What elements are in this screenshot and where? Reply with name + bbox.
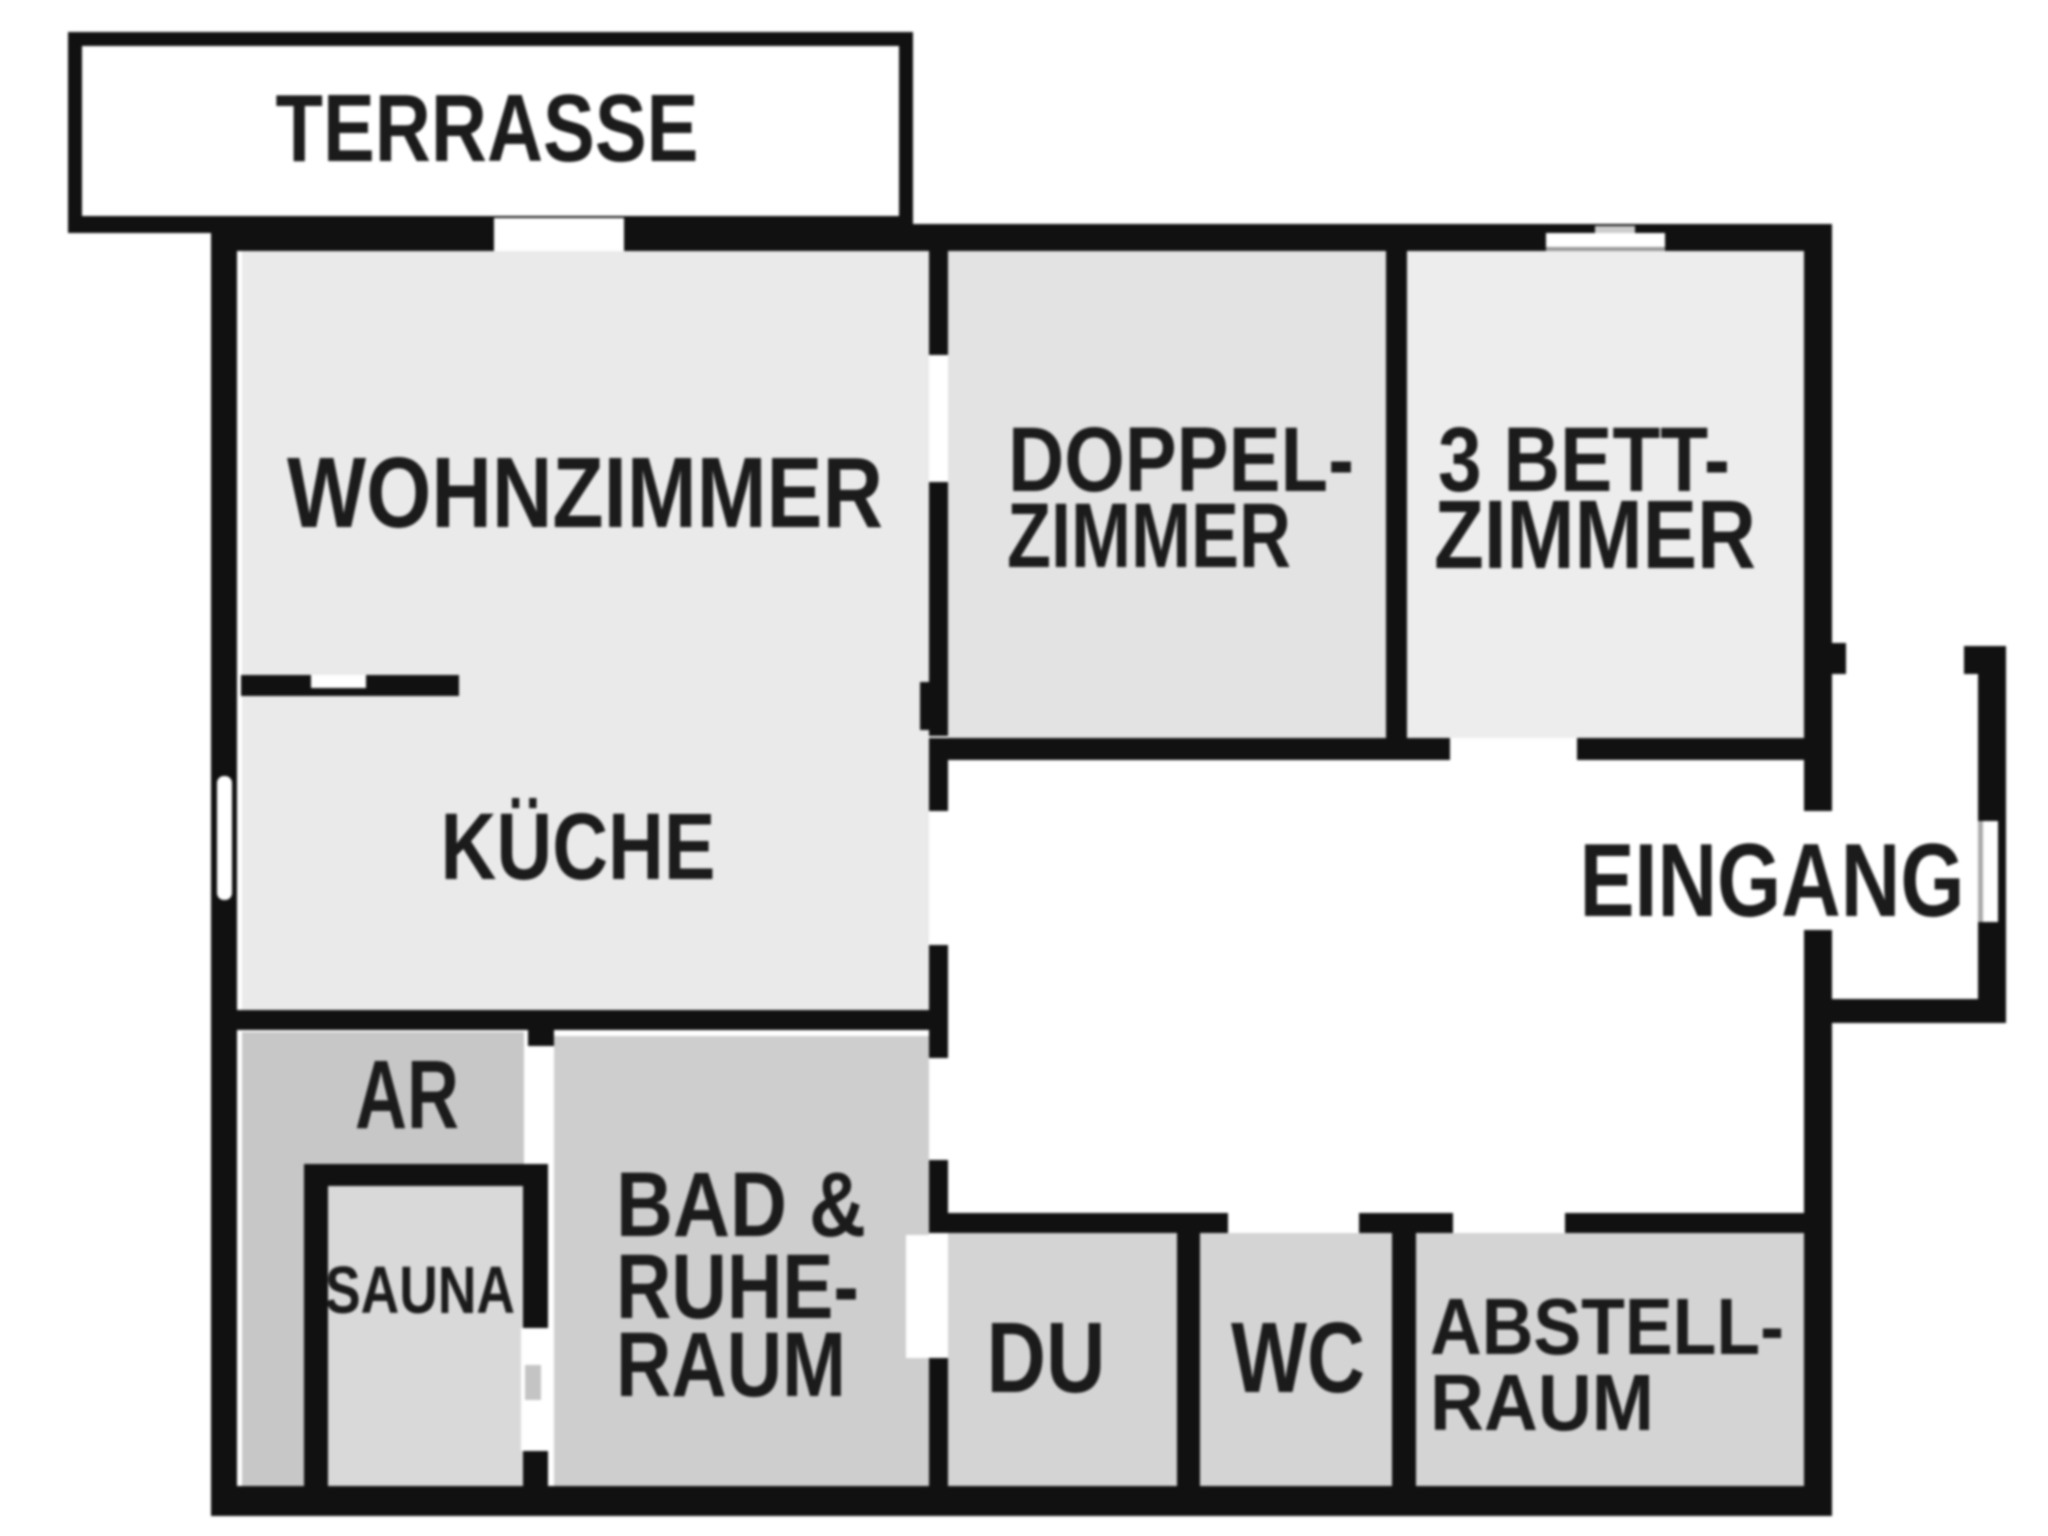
svg-text:RAUM: RAUM <box>1430 1358 1654 1447</box>
svg-text:DU: DU <box>987 1302 1106 1414</box>
svg-text:WOHNZIMMER: WOHNZIMMER <box>287 437 883 549</box>
svg-text:ZIMMER: ZIMMER <box>1007 485 1291 587</box>
svg-text:AR: AR <box>355 1040 459 1149</box>
svg-text:EINGANG: EINGANG <box>1580 823 1965 939</box>
svg-text:KÜCHE: KÜCHE <box>441 794 716 900</box>
svg-text:TERRASSE: TERRASSE <box>276 75 699 182</box>
svg-text:WC: WC <box>1231 1302 1365 1414</box>
svg-text:ZIMMER: ZIMMER <box>1434 480 1756 589</box>
svg-text:RAUM: RAUM <box>616 1314 846 1416</box>
svg-text:SAUNA: SAUNA <box>325 1253 515 1328</box>
